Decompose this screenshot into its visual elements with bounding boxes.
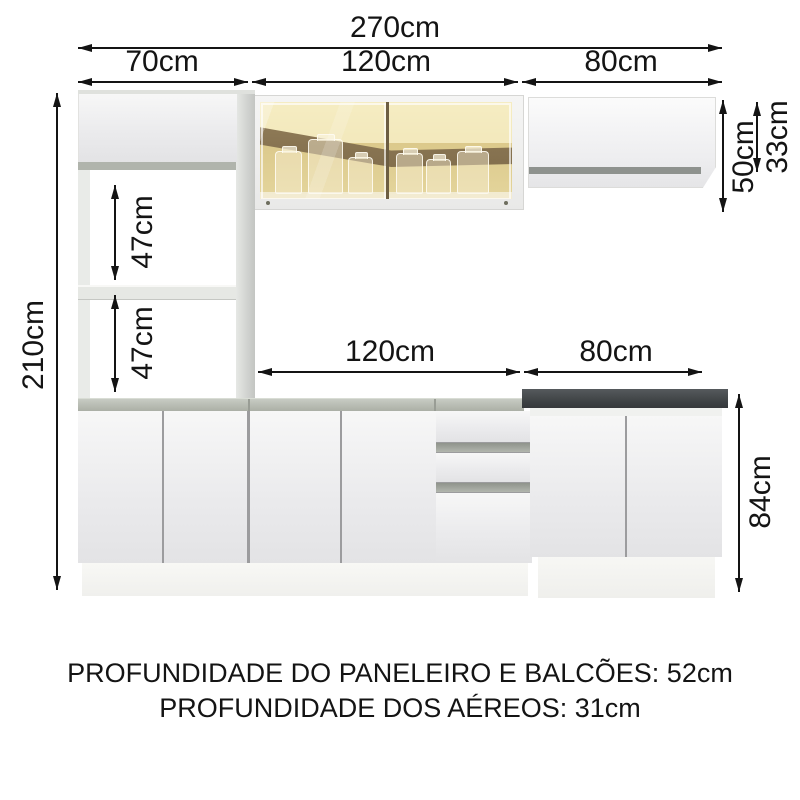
pantry-shelf [78, 285, 236, 300]
base-door [250, 411, 340, 563]
drawer-unit [436, 411, 532, 563]
base-doors-left [78, 411, 436, 563]
dim-upper-right-width-line [522, 81, 722, 83]
footer-depth-pantry-balcony: PROFUNDIDADE DO PANELEIRO E BALCÕES: 52c… [67, 658, 733, 689]
dim-base-mid-width-line [258, 371, 520, 373]
base-door [627, 416, 722, 557]
dim-base-height-line [738, 394, 740, 592]
base-door [78, 411, 162, 563]
dim-upper-mid-width-line [252, 81, 518, 83]
dim-niche-upper-line [114, 185, 116, 280]
countertop-light [78, 398, 524, 412]
footer-depth-aereos: PROFUNDIDADE DOS AÉREOS: 31cm [159, 693, 641, 724]
base-door [342, 411, 436, 563]
dim-base-mid-width-label: 120cm [345, 335, 435, 369]
dim-pantry-width-label: 70cm [125, 45, 198, 79]
dim-base-right-width-label: 80cm [579, 335, 652, 369]
dim-total-height-line [56, 93, 58, 590]
left-plinth [82, 563, 528, 596]
right-base-doors [530, 416, 722, 557]
hinge-dot [266, 201, 270, 205]
pantry-side-panel [236, 94, 255, 399]
dim-base-right-width-line [524, 371, 702, 373]
dim-niche-lower-label: 47cm [126, 306, 160, 379]
dim-niche-lower-line [114, 295, 116, 392]
right-base-plinth [538, 557, 715, 598]
glass-reflection [260, 102, 512, 199]
dim-base-height-label: 84cm [744, 455, 778, 528]
drawer-handle-strip [436, 443, 532, 452]
dim-niche-upper-label: 47cm [126, 195, 160, 268]
dim-total-height-label: 210cm [17, 300, 51, 390]
countertop-dark [522, 389, 728, 408]
dim-right-cabinet-height-line [756, 102, 758, 172]
base-door [164, 411, 247, 563]
dim-upper-right-width-label: 80cm [584, 45, 657, 79]
right-wall-cabinet [528, 97, 716, 188]
pantry-top-door [78, 94, 237, 162]
right-base-top-rail [530, 408, 722, 416]
dim-total-width-label: 270cm [350, 11, 440, 45]
right-wall-cabinet-bottom-strip [529, 167, 701, 174]
drawer-front [436, 411, 532, 442]
dim-pantry-width-line [78, 81, 248, 83]
dim-mid-cabinet-height-line [722, 100, 724, 212]
glass-wall-cabinet-glass [260, 102, 512, 199]
kitchen-dimension-diagram: 270cm 70cm 120cm 80cm 210cm 47cm 47cm 50… [0, 0, 800, 800]
dim-upper-mid-width-label: 120cm [341, 45, 431, 79]
drawer-unit-door [436, 493, 532, 563]
pantry-door-bottom-strip [78, 162, 236, 170]
dim-right-cabinet-height-label: 33cm [761, 100, 795, 173]
hinge-dot [504, 201, 508, 205]
base-door [530, 416, 625, 557]
drawer-handle-strip [436, 483, 532, 492]
drawer-front [436, 453, 532, 482]
